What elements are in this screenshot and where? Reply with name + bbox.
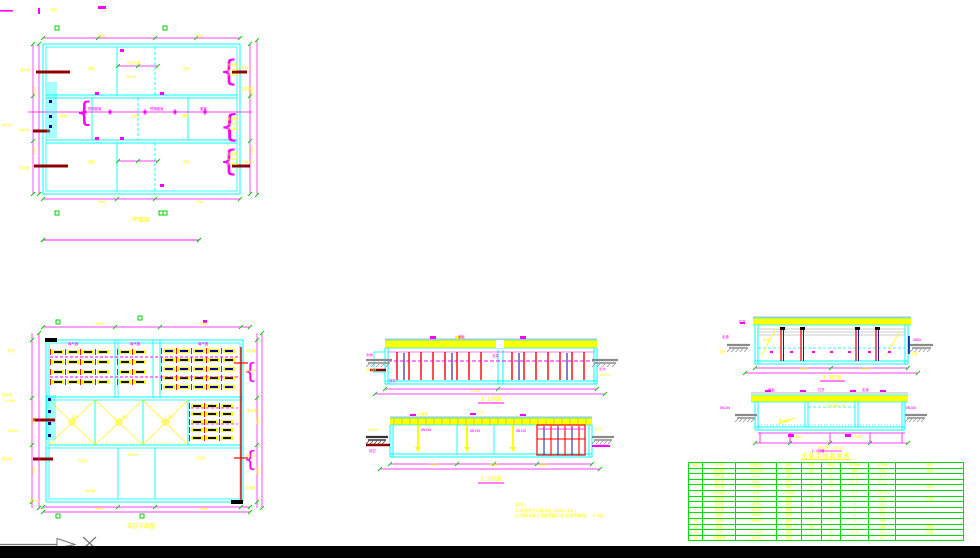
section-2-2-view: 走道板栏杆DN150DN150DN150斜管DN300放空出水DN3009000… <box>366 410 614 483</box>
section-1-1-view: 水面DN300放空盖板支架出水DN300240001-1剖面 <box>366 334 618 403</box>
table-row: 13预埋套管DN200碳钢个81296 <box>689 535 964 541</box>
annotation-label: h=400 <box>227 162 237 166</box>
annotation-label: 预埋套管 <box>88 106 102 111</box>
annotation-label: b=300 <box>227 122 237 126</box>
annotation-label: 盖板 <box>768 387 775 392</box>
annotation-label: 进水管 <box>20 67 31 72</box>
annotation-label: 沉淀区 <box>196 455 207 460</box>
annotation-label: 4500 <box>250 147 254 155</box>
annotation-label: 泥斗 <box>72 414 79 419</box>
table-cell: 个 <box>802 535 822 541</box>
annotation-label: DN200 <box>720 406 730 410</box>
annotation-label: DN150 <box>516 429 526 433</box>
annotation-label: 滤池 <box>183 159 190 164</box>
annotation-label: DN150 <box>421 428 431 432</box>
annotation-label: 栏杆 <box>818 387 825 392</box>
annotation-label: 水面 <box>366 352 373 357</box>
annotation-label: b=300 <box>227 157 237 161</box>
annotation-label: DN300 <box>368 428 378 432</box>
table-title: 主要工程数量表 <box>688 453 964 461</box>
annotation-label: 泥斗 <box>168 414 175 419</box>
annotation-label: 1-1剖面 <box>481 395 502 403</box>
annotation-label: 管廊 <box>182 113 189 118</box>
annotation-label: b=500 <box>5 399 15 403</box>
quantity-table: 主要工程数量表 编号名 称规格型号材料单位数量单重kg总重kg备注1进水闸门50… <box>688 453 964 541</box>
annotation-label: 滤池 <box>88 159 95 164</box>
annotation-label: DN300 <box>2 123 12 127</box>
annotation-label: 总图 <box>50 7 57 12</box>
annotation-label: 曝气器 <box>68 341 79 346</box>
annotation-label: 4500 <box>32 467 36 475</box>
annotation-label: 4500 <box>256 467 260 475</box>
annotation-label: 栏杆 <box>739 319 746 324</box>
annotation-label: 放空管 <box>19 165 30 170</box>
annotation-label: 盖板 <box>458 334 465 339</box>
annotation-label: 栏杆 <box>477 410 484 415</box>
annotation-label: 9000 <box>196 34 204 38</box>
annotation-label: 9000 <box>95 322 103 326</box>
annotation-label: DN150 <box>85 489 95 493</box>
annotation-label: DN300 <box>246 454 256 458</box>
annotation-label: { <box>244 447 257 471</box>
annotation-label: 2-2剖面 <box>481 475 502 483</box>
notes-block: 说明: 1.本图尺寸以毫米计,标高以米计; 2.池体混凝土强度等级C30,抗渗等… <box>515 502 604 519</box>
table-cell: 预埋套管 <box>703 535 736 541</box>
annotation-label: 集水槽 <box>227 116 238 121</box>
annotation-label: 出水槽 <box>227 151 238 156</box>
annotation-label: 4500 <box>33 87 37 95</box>
annotation-label: 走道 <box>722 334 729 339</box>
annotation-label: 滤池 <box>88 66 95 71</box>
annotation-label: 1500 <box>793 435 801 439</box>
cad-canvas[interactable]: {{{{90009000总图DN300进水管DN200放空管滤池滤池管廊走道管廊… <box>0 0 980 560</box>
annotation-label: 6000 <box>862 367 870 371</box>
annotation-label: 出水 <box>595 426 602 431</box>
section-4-4-view: 盖板栏杆走道集水槽出水槽b=300DN200DN20015001500泄水坡 i… <box>720 387 927 453</box>
annotation-label: 9000 <box>98 34 106 38</box>
annotation-label: 曝气器 <box>198 341 209 346</box>
annotation-label: 走道板 <box>418 411 429 416</box>
annotation-label: 出水 <box>599 366 606 371</box>
annotation-label: DN150 <box>126 75 136 79</box>
table-cell: DN200 <box>736 535 777 541</box>
annotation-label: DN200 <box>20 128 30 132</box>
annotation-label: 9000 <box>490 463 498 467</box>
annotation-label: 6000 <box>540 463 548 467</box>
plan-top-view: {{{{90009000总图DN300进水管DN200放空管滤池滤池管廊走道管廊… <box>0 6 259 242</box>
annotation-label: 3-3剖面 <box>822 374 841 381</box>
annotation-label: DN100 <box>128 453 138 457</box>
annotation-label: DN150 <box>30 499 40 503</box>
annotation-label: 套管 <box>200 106 207 111</box>
annotation-label: h=400 <box>227 73 237 77</box>
annotation-label: 4500 <box>250 87 254 95</box>
annotation-label: 斜撑 <box>763 337 770 342</box>
table-cell: 碳钢 <box>777 535 802 541</box>
annotation-label: 滤池 <box>183 66 190 71</box>
bottom-bar <box>0 546 980 558</box>
annotation-label: 出水堰 <box>246 348 257 353</box>
annotation-label: 集水槽 <box>247 408 258 413</box>
annotation-label: 出水槽b=300 <box>826 403 846 408</box>
annotation-label: 支架 <box>492 353 499 358</box>
annotation-label: 出水槽 <box>227 62 238 67</box>
table-cell: 12 <box>841 535 869 541</box>
annotation-label: DN300 <box>240 66 250 70</box>
annotation-label: 放空管 <box>2 456 13 461</box>
annotation-label: 1500 <box>853 435 861 439</box>
annotation-label: DN80 <box>913 338 921 342</box>
annotation-label: 9000 <box>200 507 208 511</box>
annotation-label: 进水渠 <box>2 392 13 397</box>
annotation-label: 出水管 <box>245 485 256 490</box>
annotation-label: 栏杆 <box>8 348 15 353</box>
quantity-table-grid: 编号名 称规格型号材料单位数量单重kg总重kg备注1进水闸门500×500铸铁台… <box>688 462 964 541</box>
annotation-label: 斜管 <box>540 417 547 422</box>
annotation-label: 放空 <box>389 378 396 383</box>
annotation-label: 9000 <box>98 200 106 204</box>
annotation-label: 支座 <box>719 349 726 354</box>
annotation-label: 集水槽 <box>779 418 790 423</box>
plan-bottom-view: {{90009000栏杆进水渠b=500DN200放空管DN150曝气器曝气器曝… <box>2 316 264 530</box>
table-cell: 8 <box>821 535 841 541</box>
annotation-label: 9000 <box>95 507 103 511</box>
annotation-label: 曝气器 <box>130 341 141 346</box>
annotation-label: 9000 <box>200 322 208 326</box>
annotation-label: 24000 <box>470 389 480 393</box>
annotation-label: 9000 <box>196 200 204 204</box>
annotation-label: 管廊 <box>60 113 67 118</box>
annotation-label: DN300 <box>244 160 254 164</box>
annotation-label: 9000 <box>430 463 438 467</box>
annotation-label: h=400 <box>227 127 237 131</box>
annotation-label: 走道 <box>862 387 869 392</box>
annotation-label: 反冲洗管 <box>127 60 141 65</box>
annotation-label: 6000 <box>800 367 808 371</box>
annotation-label: 沉淀区 <box>78 458 89 463</box>
annotation-label: 4500 <box>32 417 36 425</box>
annotation-label: { <box>76 97 92 128</box>
annotation-label: 4500 <box>256 417 260 425</box>
annotation-label: 走道 <box>131 113 138 118</box>
table-cell: 96 <box>868 535 896 541</box>
annotation-label: DN300 <box>598 444 608 448</box>
notes-line-2: 2.池体混凝土强度等级C30,抗渗等级S6。 A-A剖 <box>515 513 604 519</box>
annotation-label: 预埋套管 <box>150 106 164 111</box>
annotation-label: DN200 <box>8 429 18 433</box>
annotation-label: 支座 <box>911 351 918 356</box>
annotation-label: DN300 <box>246 369 256 373</box>
annotation-label: DN300 <box>366 368 376 372</box>
table-cell <box>896 535 964 541</box>
annotation-label: DN150 <box>470 429 480 433</box>
annotation-label: 放空 <box>369 448 376 453</box>
table-cell: 13 <box>689 535 703 541</box>
annotation-label: DN200 <box>906 406 916 410</box>
annotation-label: b=300 <box>227 68 237 72</box>
section-3-3-view: 栏杆走道支座支座斜撑DN80600060003-3剖面 <box>719 317 933 381</box>
annotation-label: 平面图 <box>132 217 150 224</box>
annotation-label: 泥斗 <box>122 414 129 419</box>
annotation-label: DN300 <box>600 373 610 377</box>
annotation-label: 4500 <box>33 147 37 155</box>
annotation-label: 底层平面图 <box>127 522 155 530</box>
